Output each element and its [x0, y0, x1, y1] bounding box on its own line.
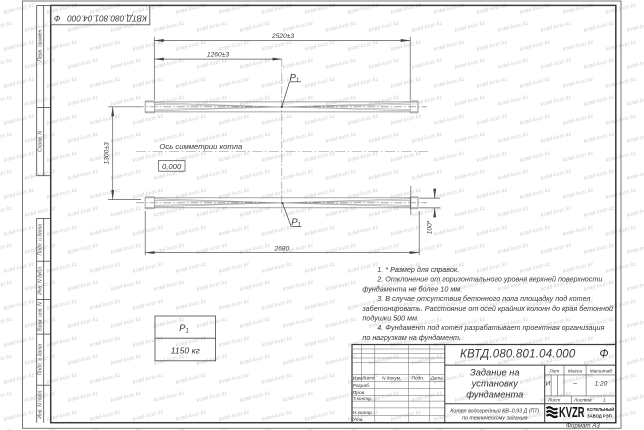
svg-text:Пров.: Пров. [353, 390, 366, 396]
svg-text:N докум.: N докум. [382, 376, 401, 382]
svg-text:4. Фундамент под котел раз: 4. Фундамент под котел разрабатывает про… [377, 323, 604, 332]
svg-text:по нагрузкам на фундамент.: по нагрузкам на фундамент. [362, 333, 461, 342]
svg-text:Справ. N: Справ. N [38, 131, 44, 152]
svg-text:Масштаб: Масштаб [590, 369, 613, 375]
svg-text:КВТД.080.801.04.000 Ф: КВТД.080.801.04.000 Ф [53, 14, 146, 23]
svg-text:Инв. N подл.: Инв. N подл. [38, 389, 44, 418]
svg-text:КВТД.080.801.04.000: КВТД.080.801.04.000 [460, 349, 576, 361]
svg-text:подушки 500 мм.: подушки 500 мм. [362, 314, 419, 323]
svg-text:3. В случае отсутствия бет: 3. В случае отсутствия бетонного пола пл… [377, 294, 590, 303]
svg-text:1150 кг: 1150 кг [171, 346, 201, 356]
svg-text:1260±3: 1260±3 [207, 52, 230, 59]
svg-text:Утв.: Утв. [353, 417, 364, 423]
svg-text:Дата: Дата [430, 376, 444, 381]
svg-text:Подп. и дата: Подп. и дата [38, 224, 44, 256]
svg-text:–: – [572, 381, 577, 388]
svg-text:КОТЕЛЬНЫЙ: КОТЕЛЬНЫЙ [587, 407, 614, 412]
svg-text:Изм: Изм [353, 376, 363, 382]
svg-text:фундамента: фундамента [466, 390, 523, 400]
svg-text:Лист: Лист [361, 376, 374, 382]
svg-text:2680: 2680 [273, 245, 289, 252]
svg-text:Взам. инв. N: Взам. инв. N [38, 302, 44, 332]
svg-text:Лист: Лист [547, 398, 560, 404]
svg-text:1:20: 1:20 [595, 381, 608, 388]
svg-text:1: 1 [603, 398, 606, 404]
svg-text:забетонировать. Расстояние о: забетонировать. Расстояние от осей крайн… [361, 304, 613, 313]
svg-text:Задание на: Задание на [470, 367, 520, 377]
svg-text:0,000: 0,000 [162, 162, 182, 171]
svg-text:Листов: Листов [573, 398, 592, 404]
svg-text:Масса: Масса [568, 369, 583, 375]
svg-text:Перв. примен.: Перв. примен. [38, 28, 44, 61]
svg-text:1300±3: 1300±3 [103, 142, 110, 165]
svg-text:2520±3: 2520±3 [271, 33, 295, 40]
svg-text:Т.контр.: Т.контр. [353, 396, 372, 402]
svg-text:KVZR: KVZR [559, 405, 585, 421]
svg-text:фундамента не более 10 мм.: фундамента не более 10 мм. [362, 284, 462, 293]
svg-text:Лит: Лит [548, 369, 559, 375]
svg-text:Котел водогрейный КВ–0,93 Д: Котел водогрейный КВ–0,93 Д (ПТ) [450, 408, 539, 415]
svg-text:Разраб.: Разраб. [353, 383, 370, 389]
svg-text:И: И [546, 381, 551, 388]
svg-text:Ось симметрии котла: Ось симметрии котла [159, 142, 243, 151]
svg-text:ЗАВОД РЭП: ЗАВОД РЭП [587, 414, 612, 419]
svg-text:Ф: Ф [599, 349, 608, 361]
svg-text:Подп. и дата: Подп. и дата [38, 344, 44, 376]
svg-text:Подп.: Подп. [412, 376, 425, 382]
svg-text:1. * Размер для справок.: 1. * Размер для справок. [377, 265, 459, 274]
svg-text:Н.контр.: Н.контр. [353, 410, 373, 416]
svg-text:установку: установку [471, 379, 520, 389]
svg-text:2. Отклонение от горизонтал: 2. Отклонение от горизонтального уровня … [376, 275, 602, 284]
svg-text:100*: 100* [427, 220, 434, 234]
svg-text:Инв. N дубл.: Инв. N дубл. [38, 266, 44, 295]
svg-text:Формат А3: Формат А3 [566, 423, 600, 430]
svg-text:по техническому заданию: по техническому заданию [462, 416, 527, 422]
